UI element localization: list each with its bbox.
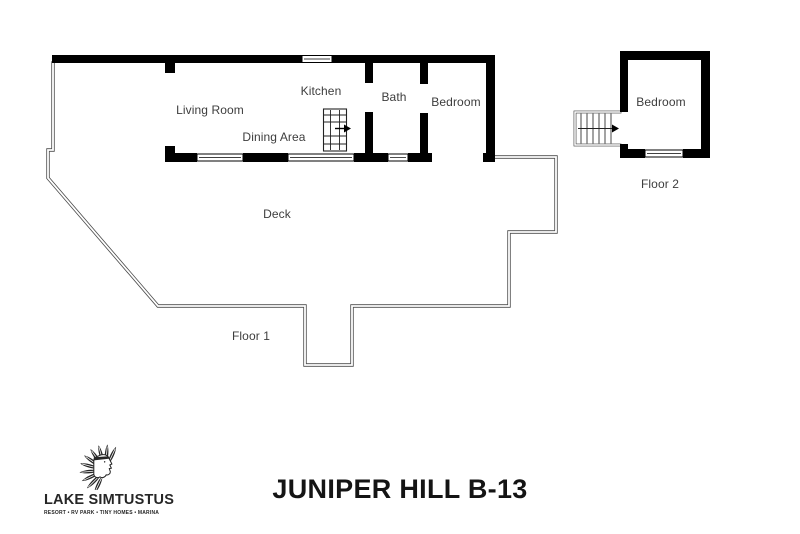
floor2-stairs-icon [575, 112, 620, 145]
label-bath: Bath [381, 90, 406, 104]
floor1-walls [52, 55, 495, 162]
floor-plan-page: Living Room Kitchen Dining Area Bath Bed… [0, 0, 800, 534]
label-floor-1: Floor 1 [232, 329, 270, 343]
label-floor-2: Floor 2 [641, 177, 679, 191]
floor2-windows [645, 150, 683, 157]
label-living-room: Living Room [176, 103, 244, 117]
label-kitchen: Kitchen [301, 84, 342, 98]
stair-direction-arrow-icon [578, 125, 619, 133]
label-deck: Deck [263, 207, 291, 221]
label-bedroom-floor1: Bedroom [431, 95, 480, 109]
floor1-stairs-icon [324, 109, 352, 151]
label-dining-area: Dining Area [242, 130, 305, 144]
label-bedroom-floor2: Bedroom [636, 95, 685, 109]
unit-title: JUNIPER HILL B-13 [0, 474, 800, 505]
brand-tagline: RESORT • RV PARK • TINY HOMES • MARINA [44, 510, 156, 516]
floor-plan-drawing [0, 0, 800, 400]
